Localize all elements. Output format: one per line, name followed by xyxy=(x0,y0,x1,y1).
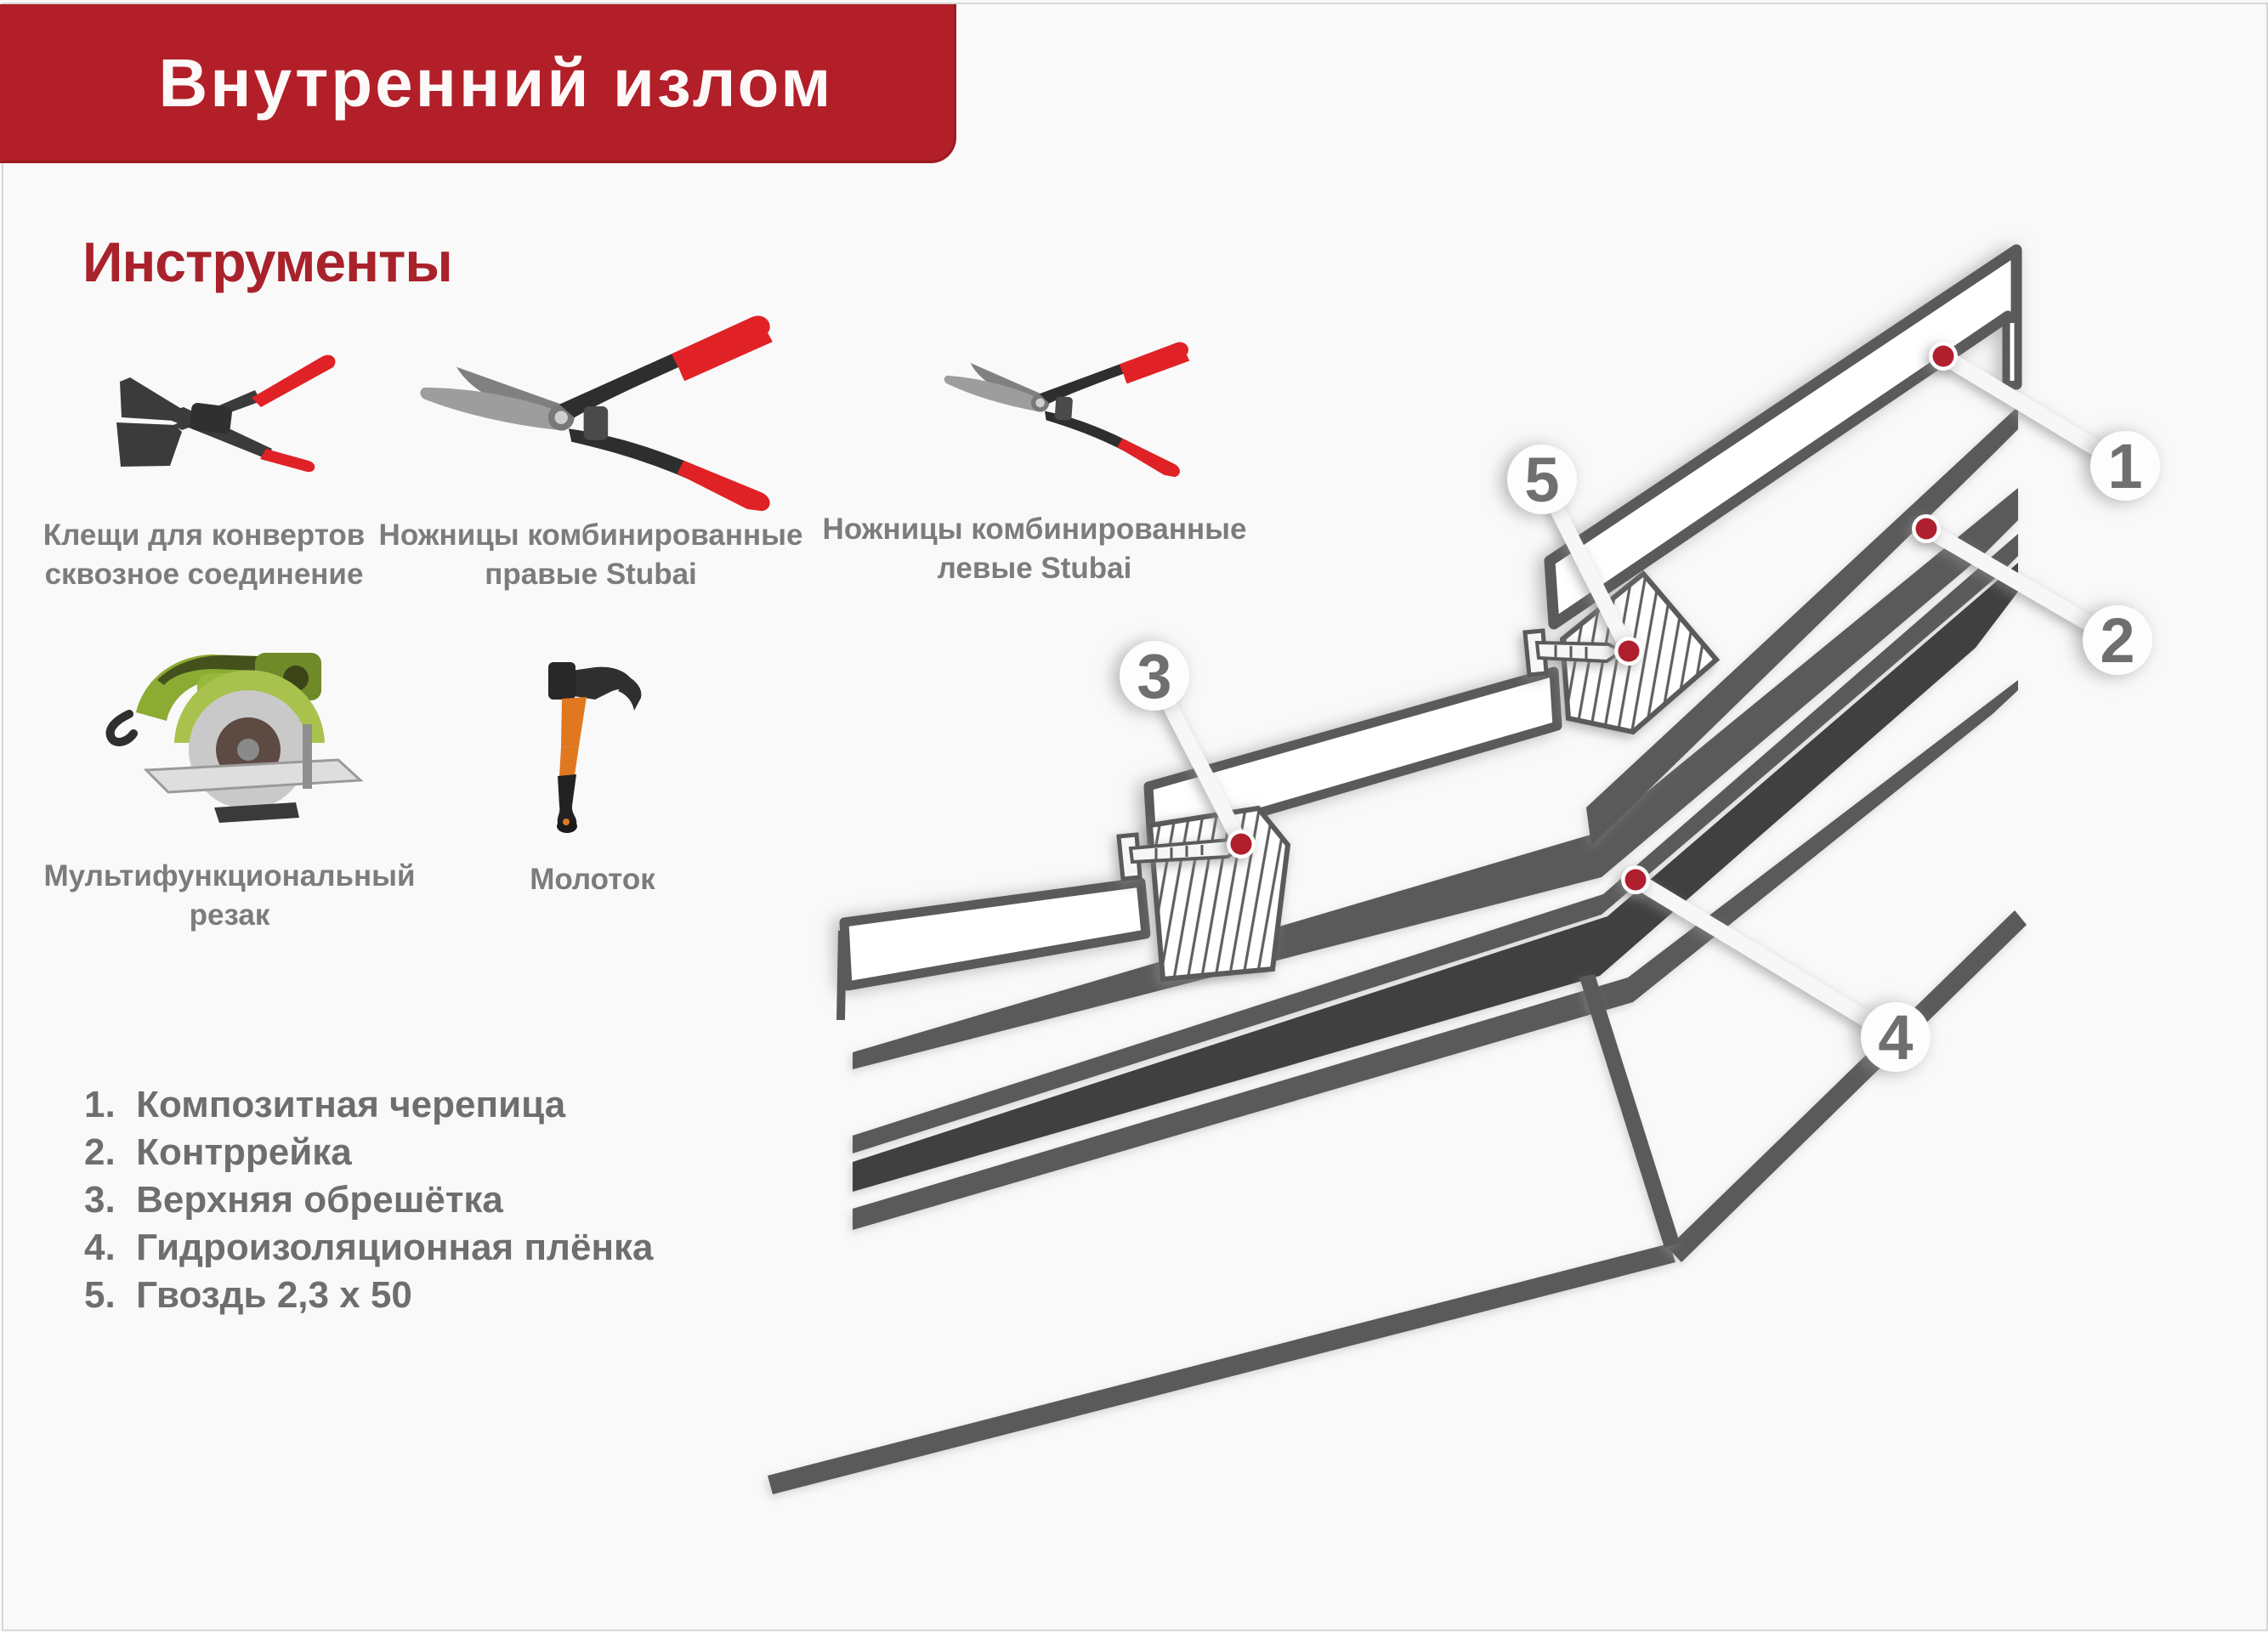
svg-text:3: 3 xyxy=(1137,641,1171,711)
svg-text:2: 2 xyxy=(2100,605,2135,676)
svg-text:4: 4 xyxy=(1878,1002,1913,1073)
svg-text:1: 1 xyxy=(2107,431,2142,501)
svg-text:5: 5 xyxy=(1524,445,1559,515)
